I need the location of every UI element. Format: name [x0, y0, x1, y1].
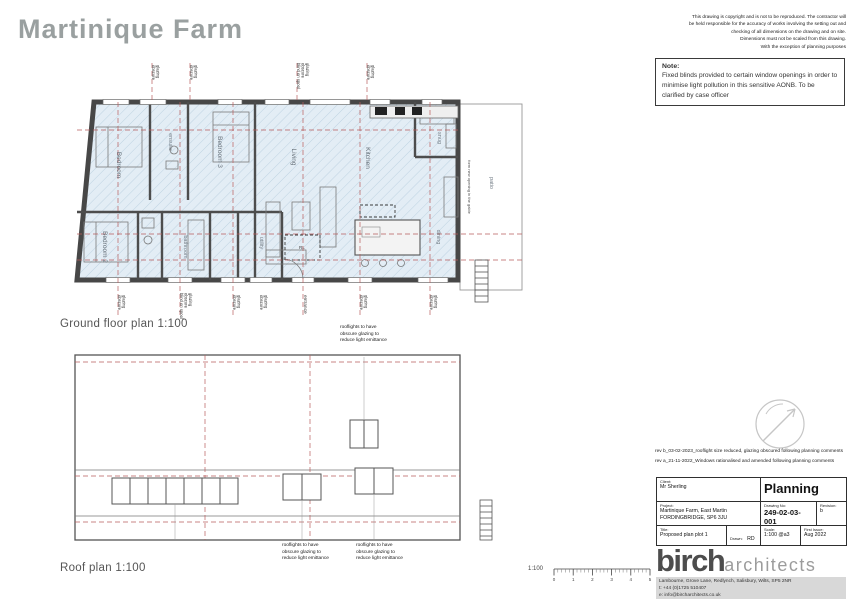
rooflight-note-line: rooflights to have: [340, 325, 420, 332]
roof-plan-caption: Roof plan 1:100: [60, 562, 146, 574]
room-label-dining: dining: [435, 230, 441, 245]
client-value: Mr Sherling: [660, 484, 757, 491]
window-label: obscure: [429, 295, 434, 311]
window-labels-bottom: obscure glazing blind on spool obscure g…: [117, 293, 439, 319]
scale-bar: 1:100 0 1 2: [528, 566, 658, 582]
scale-bar-label: 1:100: [528, 566, 543, 572]
firm-email: e: info@bircharchitects.co.uk: [659, 592, 843, 599]
window-label: obscure: [151, 65, 156, 81]
firm-name-bold: birch: [656, 543, 724, 578]
revision-line: rev a_21-11-2022_Windows rationalised an…: [655, 459, 847, 466]
roof-access-steps: [480, 500, 492, 540]
window-labels-top: obscure glazing obscure glazing blind on…: [151, 63, 376, 89]
window-label: glazing: [194, 65, 199, 79]
rooflight-note-bottom-right: rooflights to have obscure glazing to re…: [356, 543, 426, 563]
note-heading: Note:: [662, 63, 838, 70]
rooflight-note-bottom-left: rooflights to have obscure glazing to re…: [282, 543, 352, 563]
firm-name-light: architects: [724, 555, 816, 575]
firm-logotype: bircharchitects: [656, 545, 846, 576]
copyright-line: This drawing is copyright and is not to …: [648, 14, 846, 21]
room-label-bedroom3: Bedroom 3: [216, 136, 223, 168]
scale-bar-ruler: 0 1 2 3 4 5: [548, 566, 658, 582]
scale-tick: 0: [553, 577, 556, 582]
copyright-line: With the exception of planning purposes: [648, 44, 846, 51]
room-label-living: Living: [290, 149, 297, 166]
revision-cell: Revision: b: [817, 502, 846, 525]
window-label: obscure: [232, 295, 237, 311]
window-label: obscure: [359, 295, 364, 311]
window-label: glazing: [434, 295, 439, 309]
window-label: glazing: [305, 63, 310, 77]
firm-block: bircharchitects Lambourne, Grove Lane, R…: [656, 545, 846, 599]
room-label-utility: utility: [258, 237, 264, 250]
room-label-kitchen: Kitchen: [364, 147, 371, 169]
window-label: glazing: [188, 293, 193, 307]
firm-address-band: Lambourne, Grove Lane, Redlynch, Salisbu…: [656, 577, 846, 599]
first-issue-value: Aug 2022: [804, 532, 843, 539]
room-label-patio: patio: [488, 177, 494, 189]
rooflight-note-line: rooflights to have: [282, 543, 352, 550]
firm-address: Lambourne, Grove Lane, Redlynch, Salisbu…: [659, 578, 843, 585]
ground-floor-caption: Ground floor plan 1:100: [60, 318, 188, 330]
window-label: glazing: [156, 65, 161, 79]
sheet-title: Martinique Farm: [18, 14, 243, 45]
scale-cell: Scale: 1:100 @a3: [761, 526, 801, 545]
opening-note-label: form new opening in the gable: [467, 160, 472, 214]
roof-plan: [70, 350, 535, 545]
revision-line: rev b_03-02-2023_rooflight size reduced,…: [655, 449, 847, 456]
drawing-no-value: 249-02-03-001: [764, 508, 813, 525]
copyright-line: Dimensions must not be scaled from this …: [648, 36, 846, 43]
title-block: Client: Mr Sherling Planning Project: Ma…: [656, 477, 847, 546]
rooflight-note-line: reduce light emittance: [356, 556, 426, 563]
first-issue-cell: First Issue: Aug 2022: [801, 526, 846, 545]
drawn-value: RD: [747, 536, 755, 542]
copyright-line: checking of all dimensions on the drawin…: [648, 29, 846, 36]
window-label: blind on spool: [179, 293, 184, 319]
window-label: glazing: [364, 295, 369, 309]
room-label-bathroom: bathroom: [182, 235, 188, 259]
revision-notes: rev b_03-02-2023_rooflight size reduced,…: [655, 449, 847, 469]
copyright-note: This drawing is copyright and is not to …: [648, 14, 846, 51]
rooflight-note-top: rooflights to have obscure glazing to re…: [340, 325, 420, 345]
roof-outline: [75, 355, 460, 540]
window-label: glazing: [237, 295, 242, 309]
window-label: obscure: [366, 65, 371, 81]
window-label: obscure: [117, 295, 122, 311]
room-label-snug: snug: [436, 132, 442, 144]
drawing-title-value: Proposed plan plot 1: [660, 532, 723, 539]
room-label-bedroom2: Bedroom 2: [101, 231, 108, 263]
firm-phone: t: +44 (0)1725 510407: [659, 585, 843, 592]
note-body: Fixed blinds provided to certain window …: [662, 71, 838, 101]
entrance-label: entrance: [302, 295, 308, 314]
room-label-ensuite: ensuite: [167, 133, 173, 151]
project-line2: FORDINGBRIDGE, SP6 3JU: [660, 515, 757, 522]
revision-value: b: [820, 508, 843, 515]
window-label: glazing: [264, 295, 269, 309]
rooflight-note-line: rooflights to have: [356, 543, 426, 550]
room-label-bedroom: Bedroom: [115, 152, 122, 178]
window-label: obscure: [259, 295, 264, 311]
copyright-line: be held responsible for the accuracy of …: [648, 21, 846, 28]
window-label: glazing: [122, 295, 127, 309]
window-label: blind on spool: [296, 63, 301, 89]
window-label: glazing: [371, 65, 376, 79]
client-cell: Client: Mr Sherling: [657, 478, 761, 501]
scale-tick: 4: [630, 577, 633, 582]
scale-tick: 5: [649, 577, 652, 582]
drawing-no-cell: Drawing No: 249-02-03-001: [761, 502, 817, 525]
scale-tick: 2: [591, 577, 594, 582]
drawn-check-cell: Drawn: RD Check:: [727, 526, 761, 545]
rooflight-note-line: reduce light emittance: [282, 556, 352, 563]
window-label: obscure: [189, 65, 194, 81]
scale-tick: 3: [610, 577, 613, 582]
planning-note-box: Note: Fixed blinds provided to certain w…: [655, 58, 845, 106]
ground-floor-plan: RL Bedroom ensuite B: [70, 55, 535, 330]
drawing-sheet: Martinique Farm This drawing is copyrigh…: [0, 0, 850, 599]
project-line1: Martinique Farm, East Martin: [660, 508, 757, 515]
rooflight-tag: RL: [299, 245, 305, 250]
practice-logo-icon: [752, 396, 808, 452]
scale-tick: 1: [572, 577, 575, 582]
status-cell: Planning: [761, 478, 846, 501]
project-cell: Project: Martinique Farm, East Martin FO…: [657, 502, 761, 525]
drawn-label: Drawn:: [730, 536, 743, 541]
scale-value: 1:100 @a3: [764, 532, 797, 539]
window-label: obscure: [184, 293, 189, 309]
window-label: obscure: [301, 63, 306, 79]
rooflight-note-line: reduce light emittance: [340, 338, 420, 345]
